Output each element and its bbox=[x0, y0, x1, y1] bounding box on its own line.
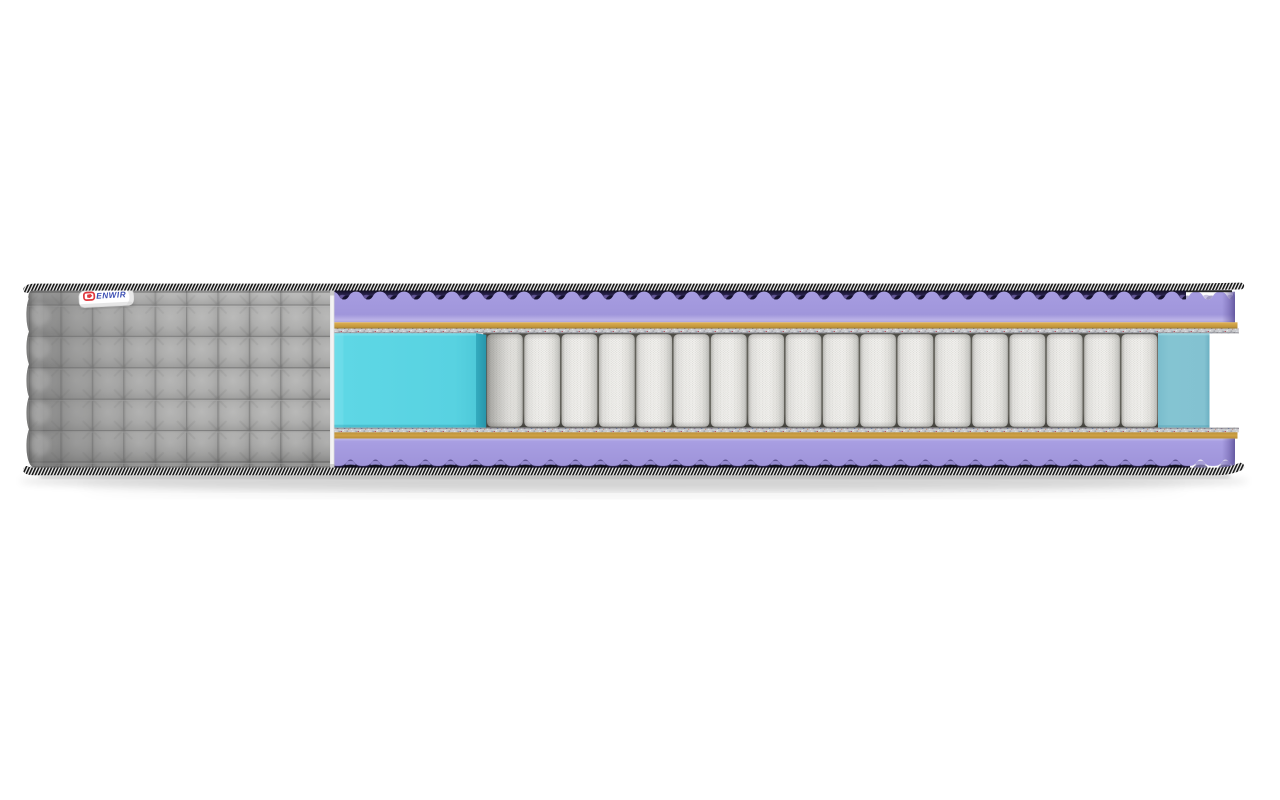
svg-text:ENWIR: ENWIR bbox=[96, 290, 126, 301]
